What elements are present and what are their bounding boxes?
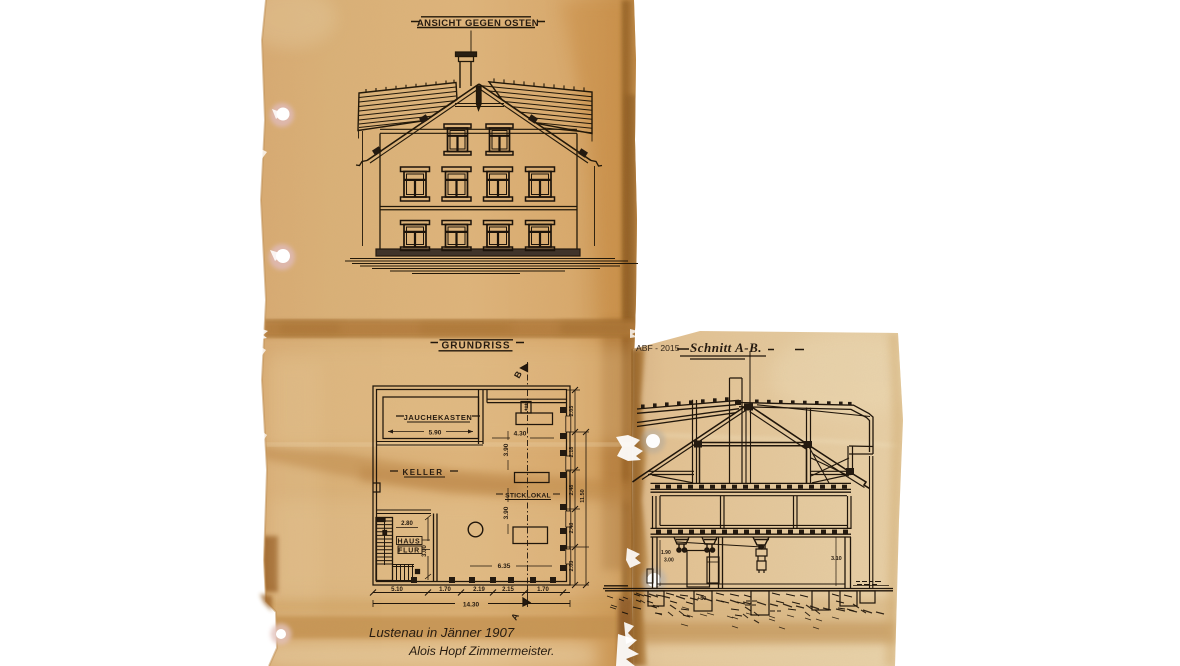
- svg-text:Lustenau in Jänner 1907: Lustenau in Jänner 1907: [369, 625, 515, 640]
- svg-text:STICKLOKAL: STICKLOKAL: [505, 493, 551, 500]
- svg-text:11.50: 11.50: [580, 489, 586, 502]
- svg-text:3.10: 3.10: [831, 556, 842, 562]
- svg-text:3.00: 3.00: [664, 558, 674, 564]
- svg-text:Alois Hopf Zimmermeister.: Alois Hopf Zimmermeister.: [408, 644, 555, 658]
- svg-text:2.19: 2.19: [473, 587, 485, 593]
- svg-text:2.03: 2.03: [569, 406, 575, 417]
- svg-text:2.15: 2.15: [502, 587, 514, 593]
- svg-text:1.70: 1.70: [537, 587, 549, 593]
- svg-text:Schnitt A-B.: Schnitt A-B.: [690, 340, 762, 355]
- svg-text:4.30: 4.30: [514, 431, 527, 438]
- svg-text:2.18: 2.18: [569, 447, 575, 458]
- svg-text:5.90: 5.90: [429, 430, 442, 437]
- svg-text:GRUNDRISS: GRUNDRISS: [441, 341, 510, 352]
- svg-text:6.35: 6.35: [498, 563, 511, 570]
- svg-text:ABF - 2015: ABF - 2015: [636, 343, 680, 353]
- svg-text:JAUCHEKASTEN: JAUCHEKASTEN: [404, 413, 473, 422]
- svg-text:1.90: 1.90: [661, 550, 671, 556]
- svg-text:2.80: 2.80: [401, 521, 413, 527]
- svg-text:3.90: 3.90: [503, 506, 510, 519]
- svg-text:2.48: 2.48: [569, 485, 575, 496]
- svg-text:2.48: 2.48: [569, 523, 575, 534]
- svg-text:1.70: 1.70: [439, 587, 451, 593]
- svg-text:5.10: 5.10: [391, 587, 403, 593]
- svg-text:KELLER: KELLER: [403, 468, 444, 477]
- svg-text:2.03: 2.03: [569, 561, 575, 572]
- svg-text:14.30: 14.30: [463, 602, 480, 609]
- svg-text:3.90: 3.90: [503, 443, 510, 456]
- svg-text:3.00: 3.00: [422, 545, 428, 557]
